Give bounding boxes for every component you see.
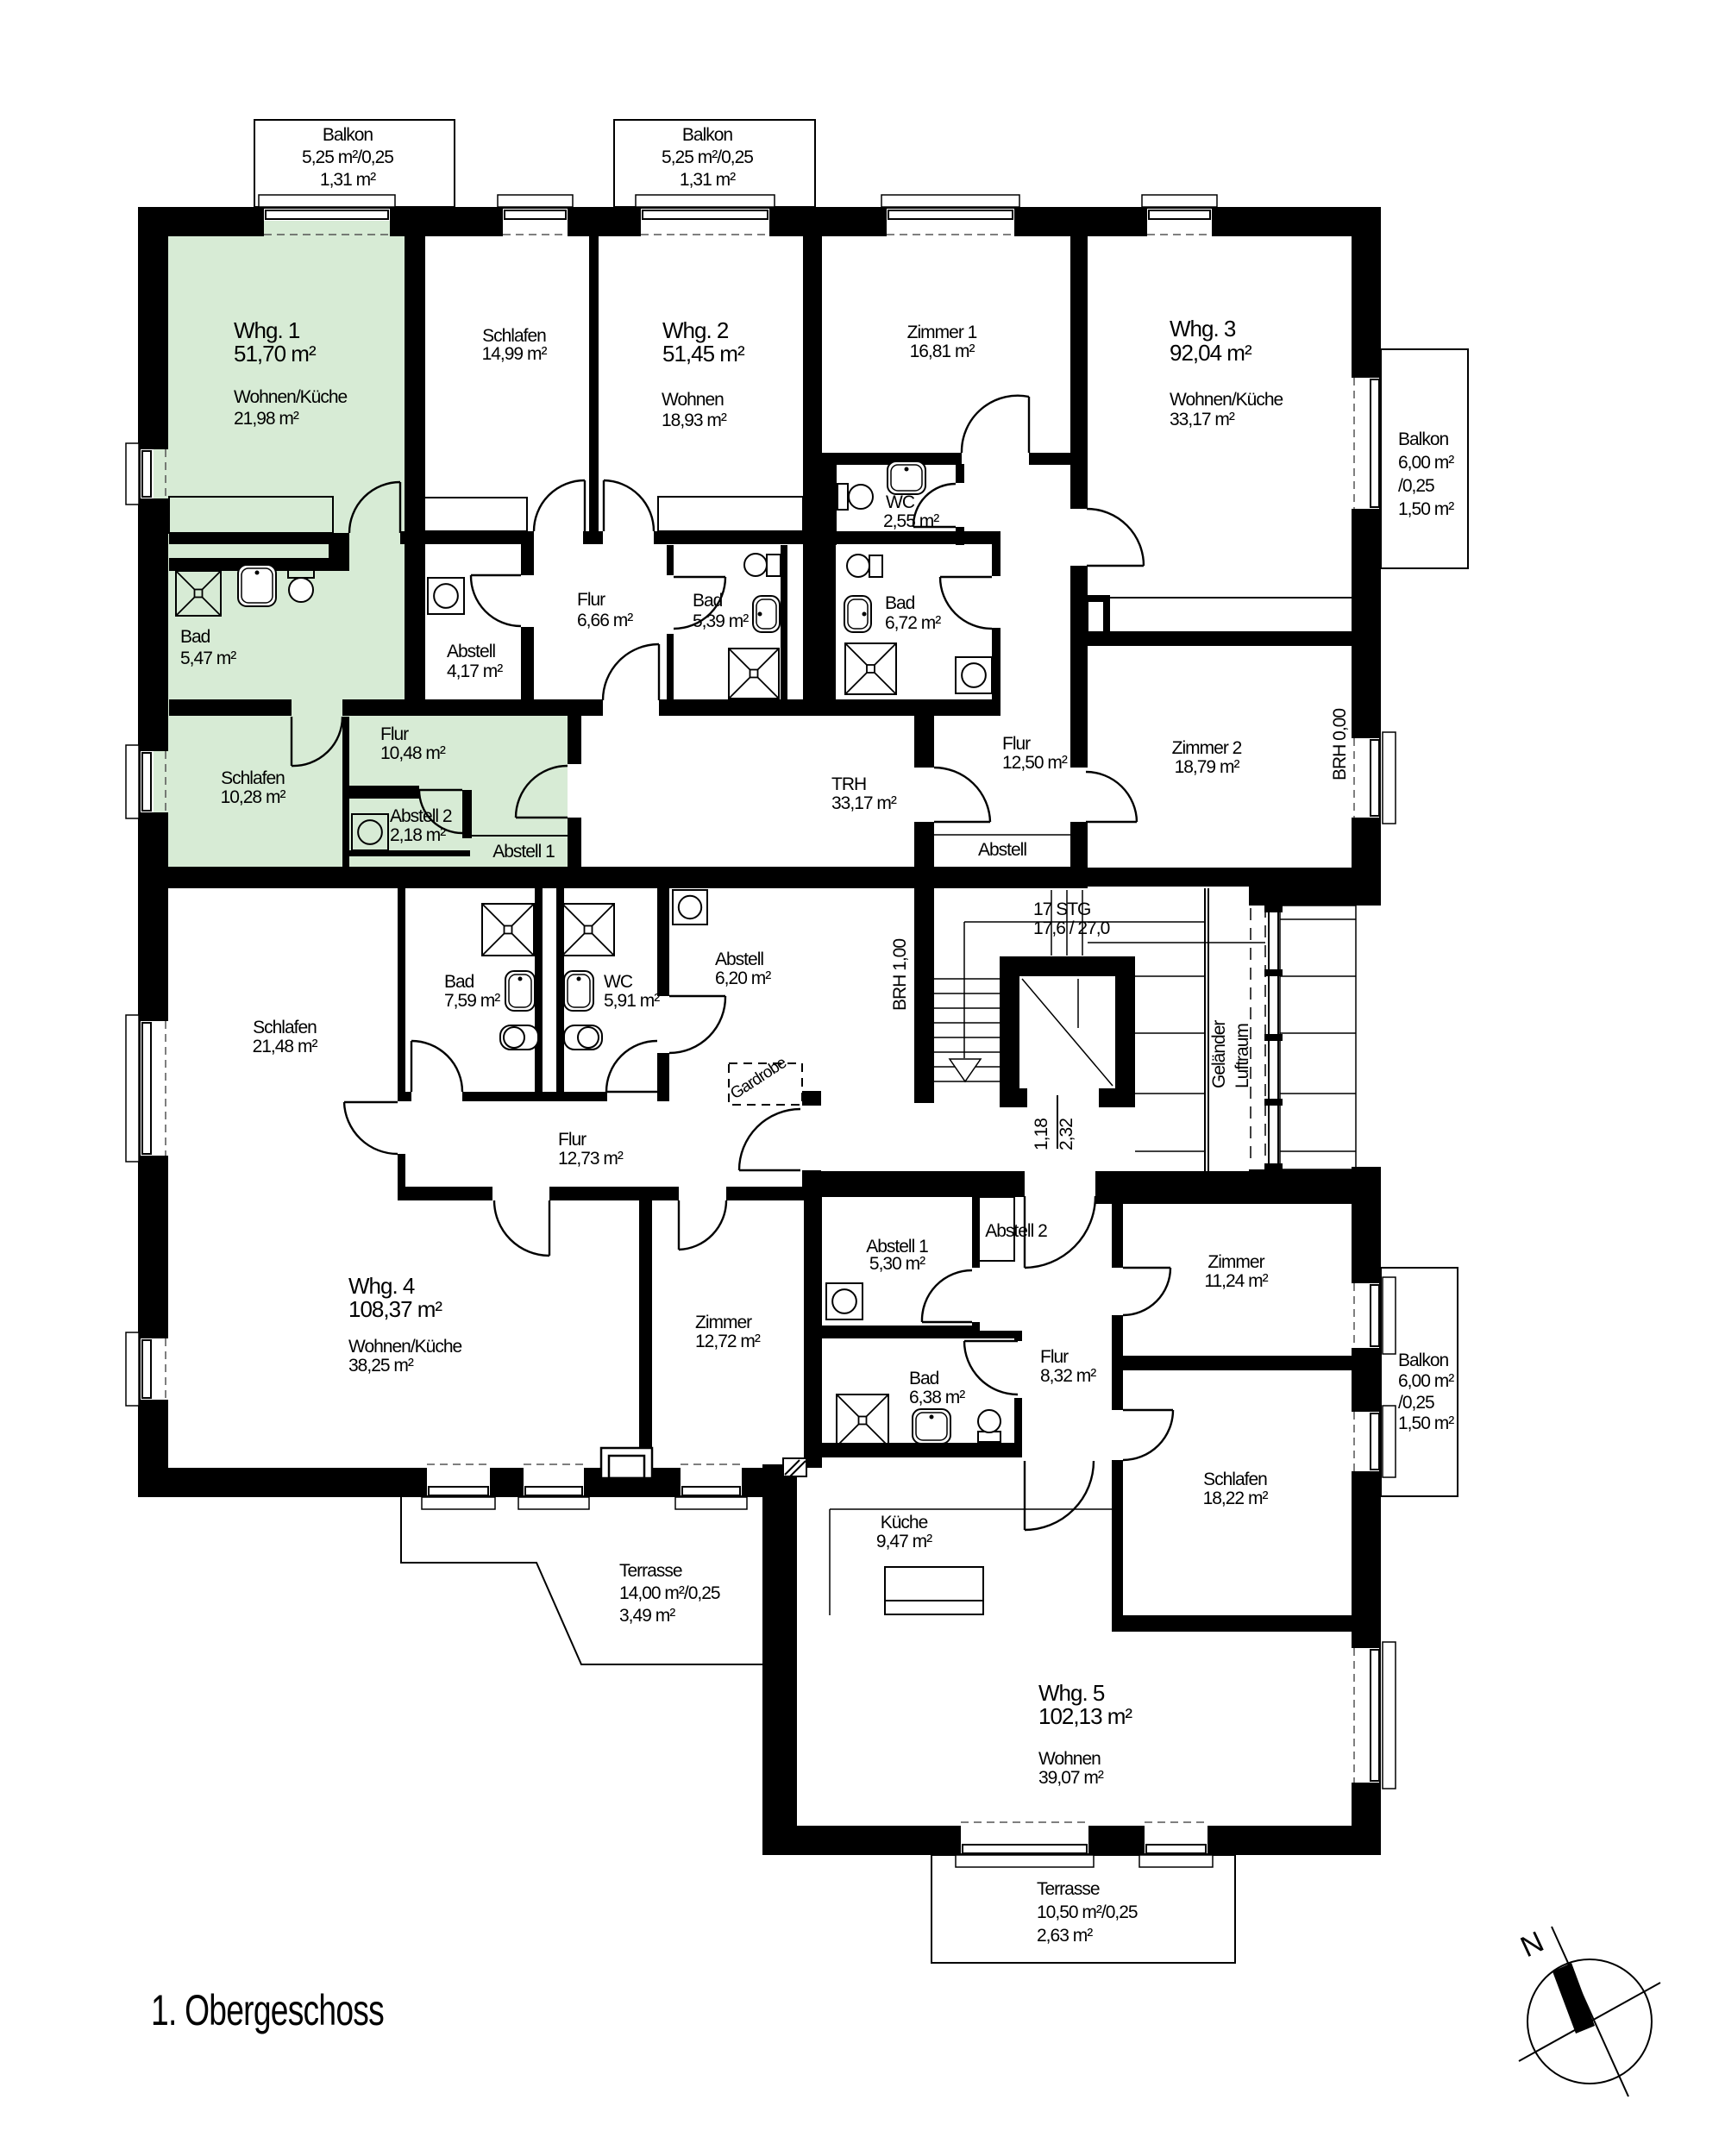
svg-text:Whg. 1: Whg. 1 (234, 317, 300, 343)
svg-text:92,04 m²: 92,04 m² (1170, 340, 1252, 366)
svg-text:BRH 1,00: BRH 1,00 (890, 939, 910, 1011)
svg-text:Flur: Flur (558, 1130, 586, 1150)
svg-text:Wohnen/Küche: Wohnen/Küche (348, 1337, 462, 1357)
svg-text:Abstell 1: Abstell 1 (492, 842, 555, 862)
svg-text:/0,25: /0,25 (1398, 476, 1434, 496)
svg-text:Bad: Bad (444, 972, 474, 992)
svg-text:1,18: 1,18 (1032, 1119, 1051, 1150)
svg-text:9,47 m²: 9,47 m² (876, 1532, 932, 1551)
svg-text:Schlafen: Schlafen (1203, 1470, 1267, 1489)
svg-text:Schlafen: Schlafen (253, 1018, 317, 1037)
svg-text:Flur: Flur (577, 590, 605, 610)
svg-text:Bad: Bad (180, 627, 210, 647)
svg-text:Balkon: Balkon (323, 125, 373, 145)
svg-text:Geländer: Geländer (1209, 1020, 1229, 1088)
svg-text:Wohnen/Küche: Wohnen/Küche (1170, 390, 1283, 410)
svg-text:1,50 m²: 1,50 m² (1398, 499, 1454, 519)
svg-text:Abstell 2: Abstell 2 (985, 1221, 1047, 1241)
svg-text:Flur: Flur (380, 724, 409, 744)
svg-text:8,32 m²: 8,32 m² (1040, 1366, 1096, 1386)
svg-text:Flur: Flur (1040, 1347, 1069, 1367)
svg-text:Terrasse: Terrasse (619, 1561, 682, 1581)
svg-text:12,72 m²: 12,72 m² (695, 1332, 761, 1351)
svg-text:6,00 m²: 6,00 m² (1398, 453, 1454, 473)
svg-text:Whg. 4: Whg. 4 (348, 1273, 415, 1299)
svg-text:5,30 m²: 5,30 m² (869, 1254, 925, 1274)
svg-text:Zimmer: Zimmer (695, 1313, 752, 1332)
svg-text:Zimmer: Zimmer (1207, 1252, 1264, 1272)
svg-text:6,20 m²: 6,20 m² (715, 968, 771, 988)
svg-text:14,00 m²/0,25: 14,00 m²/0,25 (619, 1583, 720, 1603)
svg-text:21,48 m²: 21,48 m² (253, 1037, 318, 1056)
svg-text:6,66 m²: 6,66 m² (577, 611, 633, 630)
svg-text:Schlafen: Schlafen (482, 326, 546, 346)
svg-text:6,38 m²: 6,38 m² (909, 1388, 965, 1407)
svg-text:1,31 m²: 1,31 m² (680, 170, 736, 190)
svg-text:5,25 m²/0,25: 5,25 m²/0,25 (302, 147, 393, 167)
svg-text:18,93 m²: 18,93 m² (662, 411, 727, 430)
svg-text:Abstell: Abstell (715, 950, 763, 969)
svg-text:2,32: 2,32 (1057, 1119, 1076, 1150)
svg-text:Abstell: Abstell (447, 642, 495, 661)
svg-text:BRH 0,00: BRH 0,00 (1330, 709, 1350, 780)
svg-text:6,00 m²: 6,00 m² (1398, 1371, 1454, 1391)
svg-text:38,25 m²: 38,25 m² (348, 1356, 414, 1376)
svg-text:5,91 m²: 5,91 m² (604, 991, 660, 1011)
svg-text:18,22 m²: 18,22 m² (1203, 1489, 1269, 1508)
svg-text:Zimmer 1: Zimmer 1 (907, 323, 977, 342)
svg-text:16,81 m²: 16,81 m² (910, 342, 975, 361)
svg-text:Wohnen: Wohnen (1038, 1749, 1101, 1769)
svg-text:1. Obergeschoss: 1. Obergeschoss (151, 1986, 384, 2034)
svg-text:108,37 m²: 108,37 m² (348, 1296, 442, 1322)
svg-text:Bad: Bad (693, 591, 723, 611)
svg-text:6,72 m²: 6,72 m² (885, 613, 941, 633)
svg-text:33,17 m²: 33,17 m² (1170, 410, 1235, 429)
svg-text:Whg. 5: Whg. 5 (1038, 1680, 1105, 1706)
svg-text:18,79 m²: 18,79 m² (1175, 757, 1240, 777)
svg-text:Bad: Bad (909, 1369, 939, 1388)
svg-text:10,50 m²/0,25: 10,50 m²/0,25 (1037, 1902, 1138, 1922)
svg-text:7,59 m²: 7,59 m² (444, 991, 500, 1011)
svg-text:TRH: TRH (831, 774, 866, 794)
svg-text:Balkon: Balkon (1398, 1351, 1449, 1370)
svg-text:/0,25: /0,25 (1398, 1393, 1434, 1413)
svg-text:WC: WC (604, 972, 633, 992)
svg-text:5,25 m²/0,25: 5,25 m²/0,25 (662, 147, 753, 167)
svg-text:51,70 m²: 51,70 m² (234, 341, 317, 367)
svg-text:Luftraum: Luftraum (1233, 1024, 1252, 1088)
svg-text:Zimmer 2: Zimmer 2 (1172, 738, 1242, 758)
svg-text:2,55 m²: 2,55 m² (883, 511, 939, 531)
svg-text:17 STG: 17 STG (1033, 899, 1090, 919)
svg-text:33,17 m²: 33,17 m² (831, 793, 897, 813)
svg-text:Whg. 2: Whg. 2 (662, 317, 729, 343)
svg-text:Küche: Küche (881, 1513, 928, 1532)
svg-text:2,18 m²: 2,18 m² (390, 825, 446, 845)
svg-text:21,98 m²: 21,98 m² (234, 409, 299, 429)
svg-text:Whg. 3: Whg. 3 (1170, 316, 1236, 342)
svg-text:39,07 m²: 39,07 m² (1038, 1768, 1104, 1788)
svg-text:Abstell: Abstell (978, 840, 1026, 860)
svg-text:4,17 m²: 4,17 m² (447, 661, 503, 681)
svg-text:5,47 m²: 5,47 m² (180, 649, 236, 668)
svg-text:14,99 m²: 14,99 m² (482, 344, 548, 364)
svg-text:17,6 / 27,0: 17,6 / 27,0 (1033, 918, 1110, 938)
svg-text:3,49 m²: 3,49 m² (619, 1606, 675, 1626)
svg-text:1,31 m²: 1,31 m² (320, 170, 376, 190)
svg-text:Wohnen/Küche: Wohnen/Küche (234, 387, 348, 407)
svg-text:1,50 m²: 1,50 m² (1398, 1413, 1454, 1433)
svg-text:12,50 m²: 12,50 m² (1002, 753, 1068, 773)
svg-text:Balkon: Balkon (682, 125, 733, 145)
svg-text:Wohnen: Wohnen (662, 390, 724, 410)
svg-text:Abstell 2: Abstell 2 (390, 806, 452, 826)
svg-text:Schlafen: Schlafen (221, 768, 285, 788)
svg-text:51,45 m²: 51,45 m² (662, 341, 745, 367)
svg-text:10,28 m²: 10,28 m² (221, 787, 286, 807)
svg-text:Flur: Flur (1002, 734, 1031, 754)
svg-text:5,39 m²: 5,39 m² (693, 611, 749, 631)
svg-text:10,48 m²: 10,48 m² (380, 743, 446, 763)
svg-text:2,63 m²: 2,63 m² (1037, 1926, 1093, 1946)
svg-text:102,13 m²: 102,13 m² (1038, 1703, 1132, 1729)
svg-text:WC: WC (886, 492, 915, 512)
svg-text:12,73 m²: 12,73 m² (558, 1149, 624, 1169)
svg-text:Bad: Bad (885, 593, 915, 613)
svg-text:Balkon: Balkon (1398, 429, 1449, 449)
svg-text:Terrasse: Terrasse (1037, 1879, 1100, 1899)
svg-text:11,24 m²: 11,24 m² (1204, 1271, 1268, 1291)
